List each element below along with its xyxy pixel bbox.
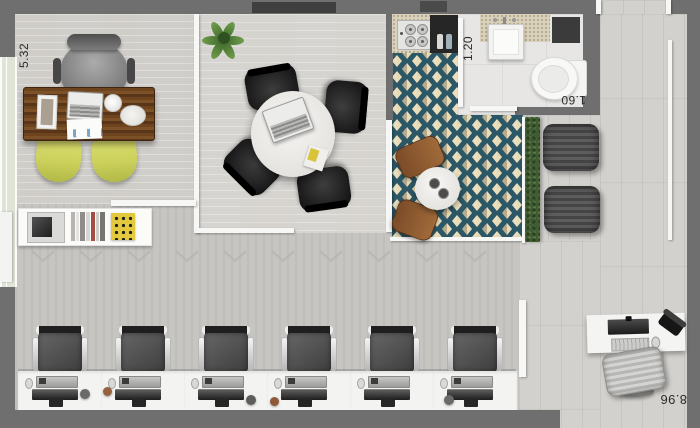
entry-door-post-right	[666, 0, 671, 14]
terrace-door-track	[668, 40, 672, 240]
wall-kitchen-divider-white	[386, 120, 392, 232]
faucet-handle	[493, 18, 497, 22]
mouse	[357, 378, 365, 389]
keyboard	[202, 376, 244, 388]
coffee-cup	[104, 94, 122, 112]
bottle	[446, 34, 452, 49]
photo-frame	[36, 95, 57, 130]
wall-office-south	[111, 200, 196, 206]
mouse	[191, 378, 199, 389]
keyboard	[368, 376, 410, 388]
trash-bin	[444, 395, 454, 405]
wall-right	[687, 0, 700, 428]
book	[80, 212, 85, 241]
magazine-stack	[111, 213, 135, 240]
monitor-stand	[381, 399, 395, 407]
keyboard-logo	[205, 378, 212, 384]
workstation	[184, 318, 268, 410]
floor-plan: 5.32	[0, 0, 700, 428]
floor-plant	[270, 397, 279, 406]
book	[76, 212, 79, 241]
toilet	[531, 57, 587, 98]
workstation-desk	[101, 371, 186, 410]
sink-bowl	[493, 29, 519, 55]
office-desk	[23, 87, 155, 141]
monitor-stand	[132, 399, 146, 407]
burner	[405, 24, 416, 35]
wall-workstation-partition	[519, 300, 526, 377]
chair-armrest-right	[165, 338, 170, 371]
chair-armrest-right	[414, 338, 419, 371]
chair-seat	[204, 333, 248, 372]
workstation-desk	[267, 371, 352, 410]
book	[71, 212, 75, 241]
workstation	[267, 318, 351, 410]
cafe-table	[415, 167, 460, 210]
sink-basin	[488, 24, 524, 60]
monitor-stand	[49, 399, 63, 407]
keyboard	[119, 376, 161, 388]
desk-phone	[657, 312, 684, 337]
kitchen-cabinet	[430, 15, 458, 53]
documents	[67, 118, 103, 139]
book-row	[71, 212, 105, 241]
wall-bottom	[0, 410, 560, 428]
photo	[41, 99, 54, 125]
mouse	[274, 378, 282, 389]
chair-seat	[38, 333, 82, 372]
hedge	[525, 117, 540, 242]
dim-label-plan-width: 8.96	[645, 392, 687, 407]
task-chair	[448, 326, 502, 372]
range-hood	[420, 1, 447, 12]
printer	[27, 212, 65, 243]
chair-seat	[370, 333, 414, 372]
keyboard-logo	[39, 378, 46, 384]
webcam	[626, 316, 632, 321]
chair-seat	[121, 333, 165, 372]
cooktop-knob	[400, 32, 403, 35]
book	[96, 212, 99, 241]
keyboard-logo	[122, 378, 129, 384]
keyboard	[285, 376, 327, 388]
monitor	[608, 319, 649, 335]
keyboard-logo	[288, 378, 295, 384]
task-chair	[199, 326, 253, 372]
chair-seat	[287, 333, 331, 372]
dim-label-office-depth: 5.32	[17, 16, 31, 68]
dim-label-bathroom-length: 1.60	[546, 93, 586, 107]
workstation	[350, 318, 434, 410]
monitor-stand	[464, 399, 478, 407]
task-chair	[33, 326, 87, 372]
bathroom-door	[470, 106, 517, 111]
chair-headrest	[67, 34, 121, 50]
lounge-chair-1	[543, 124, 599, 171]
chair-armrest-right	[331, 338, 336, 371]
entry-gap-floor	[602, 0, 666, 14]
dim-label-bathroom-width: 1.20	[461, 17, 475, 61]
serving-plate	[120, 105, 146, 126]
keyboard	[36, 376, 78, 388]
keyboard-logo	[454, 378, 461, 384]
burner	[417, 36, 428, 47]
entry-door-post-left	[596, 0, 601, 14]
burner	[405, 36, 416, 47]
floor-chevron-marks	[30, 248, 510, 268]
task-chair	[282, 326, 336, 372]
keyboard-logo	[371, 378, 378, 384]
workstation-desk	[350, 371, 435, 410]
task-chair	[365, 326, 419, 372]
chair-armrest-right	[82, 338, 87, 371]
bath-mat	[552, 17, 580, 43]
faucet-handle	[512, 18, 516, 22]
workstation-desk	[184, 371, 269, 410]
desk-fan	[80, 389, 90, 399]
monitor-stand	[298, 399, 312, 407]
sink	[488, 17, 522, 58]
burner	[417, 24, 428, 35]
wall-cafe-south	[390, 237, 523, 241]
chair-armrest-right	[248, 338, 253, 371]
chair-seat	[453, 333, 497, 372]
workstation	[101, 318, 185, 410]
bottle	[437, 34, 443, 49]
credenza	[18, 208, 152, 246]
chair-armrest-left	[53, 58, 61, 84]
lounge-chair-2	[544, 186, 600, 233]
manager-desk	[587, 313, 686, 354]
plate	[438, 188, 449, 199]
book	[100, 212, 105, 241]
office-laptop	[66, 91, 103, 121]
keyboard	[451, 376, 493, 388]
floor-plant	[103, 387, 112, 396]
book	[91, 212, 95, 241]
plant-core	[218, 32, 230, 44]
mouse	[440, 378, 448, 389]
chair-armrest-right	[497, 338, 502, 371]
wall-mounted-tv	[252, 2, 336, 13]
window-ac-unit	[0, 212, 12, 282]
wall-meeting-south	[196, 228, 294, 233]
chair-armrest-right	[127, 58, 135, 84]
book	[86, 212, 90, 241]
workstation-desk	[18, 371, 103, 410]
task-chair	[116, 326, 170, 372]
potted-plant	[201, 17, 247, 63]
mouse	[25, 378, 33, 389]
plate	[429, 178, 440, 189]
laptop-keyboard	[69, 105, 100, 118]
toilet-seat	[538, 65, 569, 93]
trash-bin	[246, 395, 256, 405]
printer-lid	[32, 217, 52, 237]
cooktop	[397, 20, 431, 50]
monitor-stand	[215, 399, 229, 407]
